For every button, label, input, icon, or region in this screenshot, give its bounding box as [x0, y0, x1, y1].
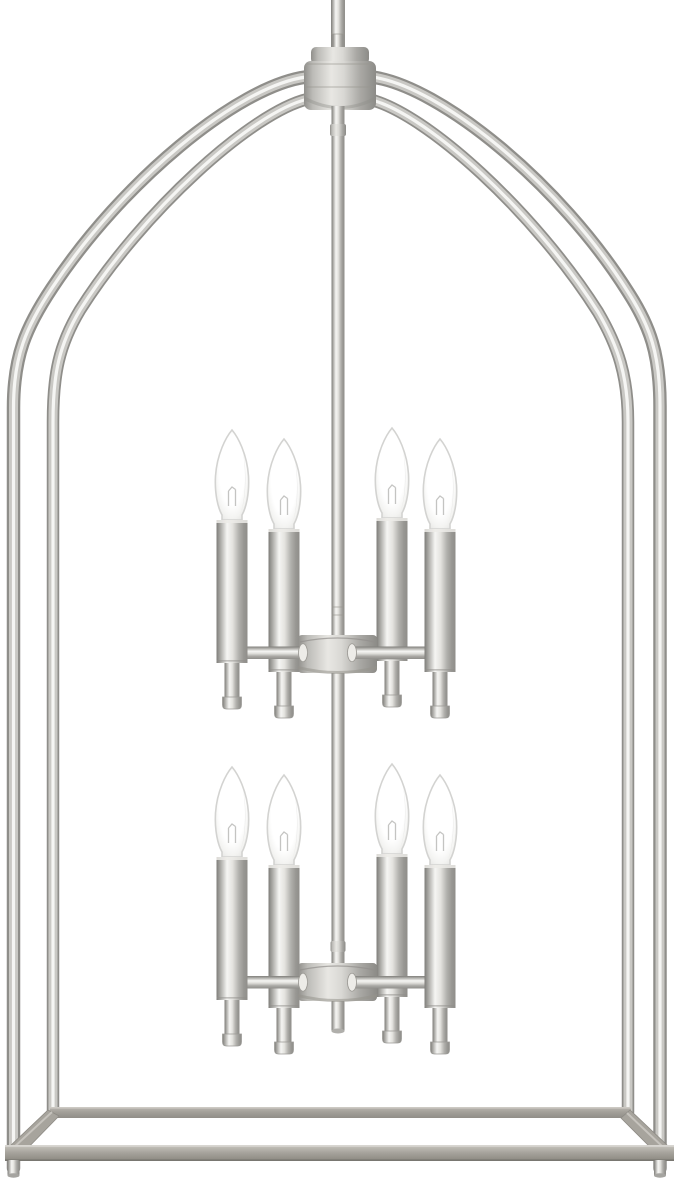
- candle-lower-front-left: [215, 767, 248, 1046]
- foot-front-right-cap: [654, 1173, 666, 1177]
- product-photo-canvas: [0, 0, 679, 1181]
- candle-upper-front-right: [423, 439, 456, 718]
- chandelier-product-photo: [0, 0, 679, 1181]
- candle-upper-back-left: [267, 439, 300, 718]
- bottom-rail-front-shadow: [5, 1159, 674, 1161]
- lower-arm-left-cap: [299, 973, 308, 991]
- lower-arm-right-cap: [348, 973, 357, 991]
- canopy-hub: [304, 47, 376, 110]
- candle-upper-back-right: [375, 428, 408, 707]
- bottom-rail-front-highlight: [5, 1145, 674, 1147]
- upper-arm-right-cap: [348, 644, 357, 662]
- candle-lower-back-right: [375, 764, 408, 1043]
- bottom-rail-front: [5, 1145, 674, 1161]
- candle-lower-front-right: [423, 775, 456, 1054]
- stem-finial-tip: [332, 1029, 345, 1034]
- stem-finial: [332, 1000, 345, 1032]
- hang-rod-coupling: [333, 34, 344, 49]
- foot-front-left-cap: [8, 1173, 20, 1177]
- frame-arm-post-front-right: [372, 77, 660, 1168]
- upper-arm-left-cap: [299, 644, 308, 662]
- hang-rod: [331, 0, 345, 52]
- center-stem: [330, 106, 346, 1034]
- bottom-rail-back: [50, 1107, 631, 1118]
- candle-upper-front-left: [215, 430, 248, 709]
- candle-lower-back-left: [267, 775, 300, 1054]
- stem-collar-top: [330, 124, 346, 136]
- stem-collar-lower: [331, 941, 346, 952]
- bottom-frame: [5, 1107, 674, 1178]
- bottom-rail-back-highlight: [50, 1107, 631, 1109]
